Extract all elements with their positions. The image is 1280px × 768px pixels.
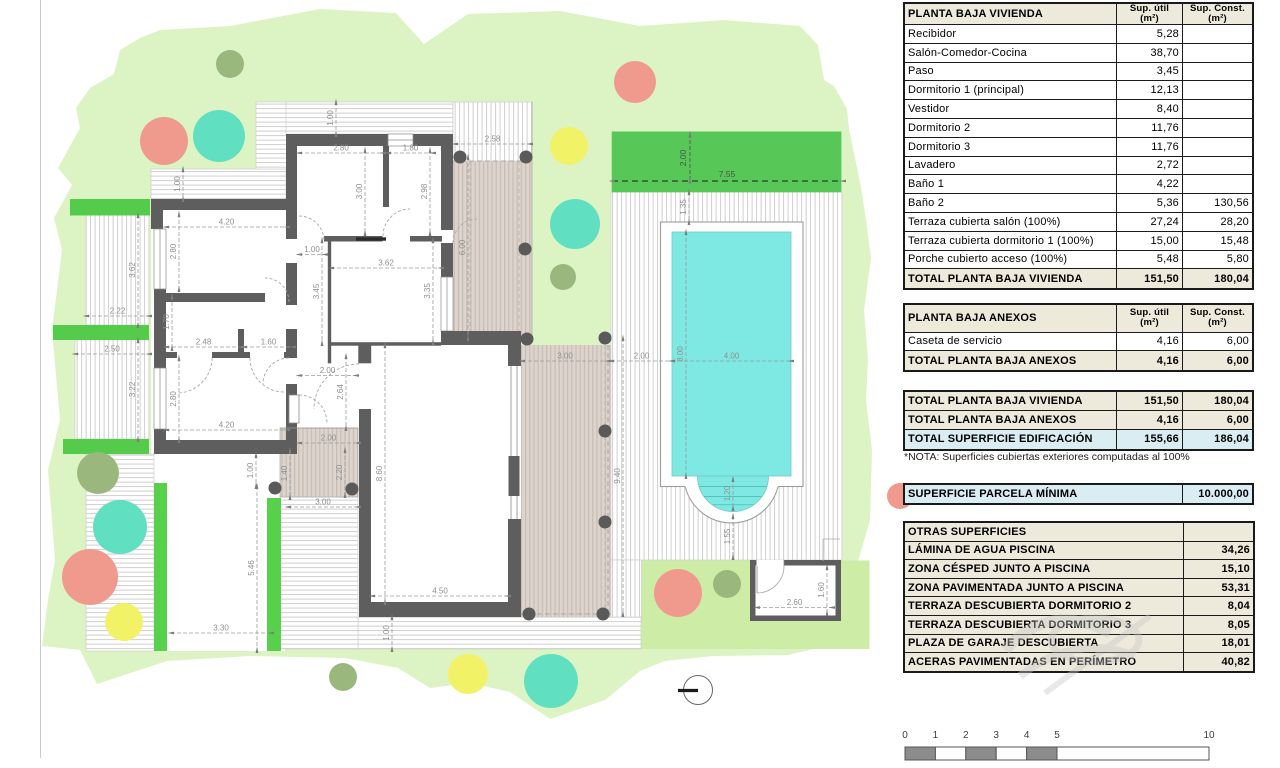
svg-text:3.00: 3.00 (355, 183, 364, 199)
svg-text:2.80: 2.80 (333, 144, 349, 153)
svg-text:7.55: 7.55 (719, 169, 736, 179)
svg-text:3.30: 3.30 (213, 624, 229, 633)
svg-text:4.20: 4.20 (219, 421, 235, 430)
svg-text:4: 4 (1024, 730, 1030, 741)
svg-text:9.40: 9.40 (613, 468, 622, 484)
svg-text:2.80: 2.80 (169, 243, 178, 259)
svg-text:1: 1 (933, 730, 939, 741)
svg-text:2.80: 2.80 (169, 391, 178, 407)
svg-text:1.00: 1.00 (382, 625, 391, 641)
svg-text:1.00: 1.00 (326, 110, 335, 126)
svg-text:3.22: 3.22 (128, 381, 137, 397)
svg-text:5: 5 (1054, 730, 1060, 741)
svg-text:1.00: 1.00 (173, 176, 182, 192)
svg-text:2.00: 2.00 (320, 366, 336, 375)
svg-text:5.46: 5.46 (247, 560, 256, 576)
svg-text:1.00: 1.00 (304, 245, 320, 254)
svg-text:4.20: 4.20 (219, 218, 235, 227)
svg-text:3.35: 3.35 (423, 283, 432, 299)
svg-text:4.00: 4.00 (724, 352, 740, 361)
svg-text:1.00: 1.00 (246, 462, 255, 478)
svg-text:4.50: 4.50 (432, 587, 448, 596)
svg-text:8.60: 8.60 (375, 465, 384, 481)
svg-text:2.20: 2.20 (335, 464, 344, 480)
svg-text:3.00: 3.00 (315, 498, 331, 507)
svg-text:10: 10 (1203, 730, 1215, 741)
svg-text:3.45: 3.45 (312, 283, 321, 299)
svg-text:1.40: 1.40 (280, 465, 289, 481)
svg-text:2: 2 (963, 730, 969, 741)
svg-text:6.00: 6.00 (458, 239, 467, 255)
svg-text:2.00: 2.00 (678, 149, 688, 166)
svg-text:2.58: 2.58 (485, 135, 501, 144)
svg-text:1.20: 1.20 (723, 485, 732, 501)
svg-text:3.00: 3.00 (557, 352, 573, 361)
svg-text:1.60: 1.60 (817, 582, 826, 598)
svg-text:2.00: 2.00 (321, 434, 337, 443)
svg-text:2.60: 2.60 (787, 598, 803, 607)
svg-text:0: 0 (902, 730, 908, 741)
svg-text:1.70: 1.70 (162, 314, 171, 330)
svg-text:2.50: 2.50 (104, 345, 120, 354)
svg-text:2.48: 2.48 (196, 338, 212, 347)
svg-text:1.80: 1.80 (403, 144, 419, 153)
svg-text:1.55: 1.55 (723, 528, 732, 544)
svg-text:3.62: 3.62 (128, 262, 137, 278)
svg-text:3.62: 3.62 (378, 259, 394, 268)
svg-text:2.98: 2.98 (420, 183, 429, 199)
svg-text:1.35: 1.35 (679, 199, 688, 215)
svg-text:8.00: 8.00 (676, 346, 685, 362)
svg-text:2.64: 2.64 (336, 384, 345, 400)
svg-text:2.22: 2.22 (110, 307, 126, 316)
svg-text:3: 3 (993, 730, 999, 741)
svg-text:1.60: 1.60 (261, 338, 277, 347)
svg-text:2.00: 2.00 (634, 352, 650, 361)
